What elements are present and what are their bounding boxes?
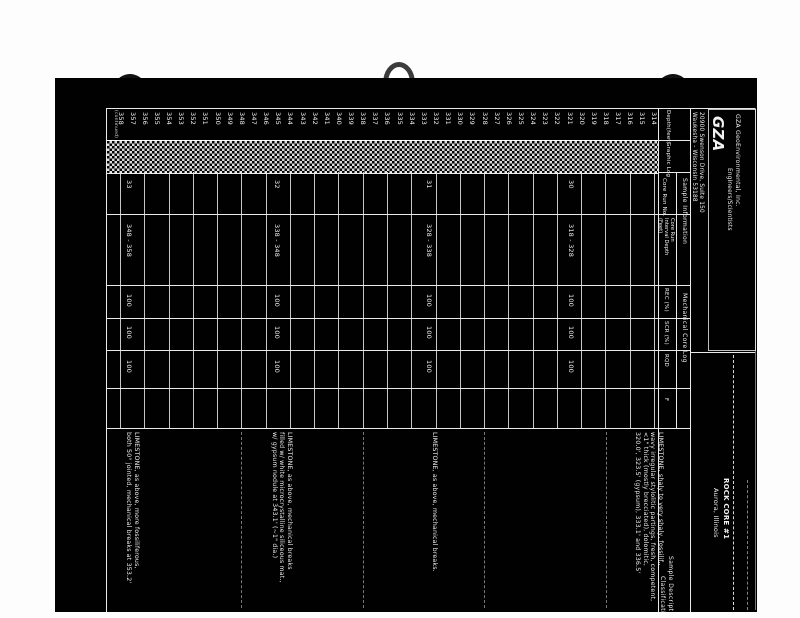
grid-line xyxy=(460,172,461,428)
depth-tick: 350 xyxy=(213,112,220,125)
classification-header: Classification xyxy=(658,576,665,612)
description-line: filled w/ white microcrystalline siliceo… xyxy=(278,432,286,608)
depth-tick: 330 xyxy=(456,112,463,125)
sample-description-header: Sample Description xyxy=(666,556,673,612)
core-run-no-value: 30 xyxy=(567,180,574,189)
depth-tick: 316 xyxy=(626,112,633,125)
core-run-no-value: 32 xyxy=(273,180,280,189)
grid-line xyxy=(363,172,364,428)
depth-tick: 338 xyxy=(359,112,366,125)
rec-value: 100 xyxy=(425,294,432,307)
grid-line xyxy=(169,172,170,428)
grid-line xyxy=(266,172,267,428)
core-run-interval-header: Core RunInterval Depth(Feet) xyxy=(657,218,675,288)
depth-tick: 326 xyxy=(505,112,512,125)
depth-tick: 323 xyxy=(541,112,548,125)
right-panel-dashed-line xyxy=(747,480,749,610)
right-panel-dashed-line xyxy=(733,355,735,610)
depth-tick: 339 xyxy=(347,112,354,125)
grid-line xyxy=(217,172,218,428)
company-address-line2: Waukesha - Wisconsin 53188 xyxy=(691,112,697,202)
depth-tick: 344 xyxy=(286,112,293,125)
description-block: LIMESTONE, as above, more fossiliferous,… xyxy=(125,432,140,608)
run-boundary-dashed-line xyxy=(241,432,243,608)
grid-line xyxy=(338,172,339,428)
grid-line xyxy=(605,172,606,428)
run-boundary-dashed-line xyxy=(606,432,608,608)
fractures-header: F xyxy=(663,398,669,401)
depth-tick: 357 xyxy=(128,112,135,125)
depth-tick: 342 xyxy=(311,112,318,125)
core-run-no-value: 33 xyxy=(125,180,132,189)
graphic-log-hatch-limestone xyxy=(107,140,658,174)
description-line: LIMESTONE, as above, more fossiliferous, xyxy=(132,432,140,608)
company-logo: GZA xyxy=(710,116,727,151)
depth-tick: 314 xyxy=(650,112,657,125)
graphic-log-column-header: Graphic Log xyxy=(665,142,671,177)
grid-line xyxy=(654,172,655,428)
log-page: 3583573563553543533523513503493483473463… xyxy=(55,78,757,612)
sample-information-header: Sample Information xyxy=(680,178,687,244)
depth-tick: 315 xyxy=(638,112,645,125)
depth-tick: 354 xyxy=(165,112,172,125)
run-boundary-dashed-line xyxy=(484,432,486,608)
depth-tick: 331 xyxy=(444,112,451,125)
depth-tick: 345 xyxy=(274,112,281,125)
depth-tick: 348 xyxy=(238,112,245,125)
grid-line xyxy=(241,172,242,428)
grid-line xyxy=(557,172,558,428)
description-line: LIMESTONE, as above, mechanical breaks. xyxy=(430,432,438,608)
rec-value: 100 xyxy=(125,294,132,307)
depth-tick: 319 xyxy=(590,112,597,125)
grid-line xyxy=(484,172,485,428)
depth-tick: 334 xyxy=(408,112,415,125)
depth-column-header: Depth(feet) xyxy=(665,110,671,144)
grid-line xyxy=(533,172,534,428)
depth-tick: 328 xyxy=(480,112,487,125)
description-line: w/ gypsum nodule at 343.1' (~1" dia.) xyxy=(270,432,278,608)
depth-tick: 336 xyxy=(383,112,390,125)
grid-line xyxy=(411,172,412,428)
depth-tick: 355 xyxy=(153,112,160,125)
grid-line xyxy=(193,172,194,428)
core-run-interval-value: 318 - 328 xyxy=(567,224,574,257)
core-run-interval-value: 348 - 358 xyxy=(125,224,132,257)
depth-tick: 329 xyxy=(468,112,475,125)
company-tagline: Engineers/Scientists xyxy=(726,168,732,231)
log-title: ROCK CORE #1 xyxy=(721,478,729,539)
rec-value: 100 xyxy=(273,294,280,307)
depth-tick: 353 xyxy=(177,112,184,125)
rqd-header: RQD xyxy=(663,354,669,367)
depth-tick: 341 xyxy=(323,112,330,125)
rqd-value: 100 xyxy=(273,360,280,373)
scanned-boring-log-sheet: { "document": { "company": { "logo_text"… xyxy=(0,0,800,618)
depth-tick: 333 xyxy=(420,112,427,125)
description-line: 320.0', 323.5' (gypsum), 333.1' and 336.… xyxy=(634,432,642,608)
depth-tick: 352 xyxy=(189,112,196,125)
grid-line xyxy=(581,172,582,428)
depth-tick: 340 xyxy=(335,112,342,125)
scr-value: 100 xyxy=(125,326,132,339)
description-line: LIMESTONE, as above, mechanical breaks xyxy=(285,432,293,608)
depth-tick: 324 xyxy=(529,112,536,125)
log-location: Aurora, Illinois xyxy=(712,488,719,538)
description-line: both 50° jointed, mechanical breaks at 3… xyxy=(125,432,133,608)
grid-line xyxy=(630,172,631,428)
core-run-no-header: Core Run No. xyxy=(661,178,667,216)
table-left-line xyxy=(106,108,107,612)
description-line: wavy irregular stylolitic partings, fres… xyxy=(649,432,657,608)
label-col-line xyxy=(676,172,677,428)
scr-header: SCR (%) xyxy=(663,321,669,345)
depth-tick: 322 xyxy=(553,112,560,125)
depth-tick: 332 xyxy=(432,112,439,125)
depth-tick: 321 xyxy=(565,112,572,125)
depth-tick: 337 xyxy=(371,112,378,125)
rec-value: 100 xyxy=(567,294,574,307)
depth-tick: 347 xyxy=(250,112,257,125)
depth-tick: 349 xyxy=(226,112,233,125)
right-panel-divider xyxy=(690,352,755,353)
depth-tick: 351 xyxy=(201,112,208,125)
interval-header-line: Interval Depth xyxy=(663,218,669,288)
depth-tick: 318 xyxy=(602,112,609,125)
core-run-no-value: 31 xyxy=(425,180,432,189)
rqd-value: 100 xyxy=(567,360,574,373)
company-name: GZA GeoEnvironmental, Inc. xyxy=(733,114,740,207)
depth-tick: 327 xyxy=(493,112,500,125)
scr-value: 100 xyxy=(425,326,432,339)
band-line xyxy=(106,428,690,429)
rqd-value: 100 xyxy=(425,360,432,373)
grid-line xyxy=(290,172,291,428)
grid-line xyxy=(314,172,315,428)
depth-tick: 325 xyxy=(517,112,524,125)
core-run-interval-value: 328 - 338 xyxy=(425,224,432,257)
depth-tick: 356 xyxy=(141,112,148,125)
continued-note: (continued) xyxy=(112,110,117,138)
depth-tick: 335 xyxy=(395,112,402,125)
rec-header: REC (%) xyxy=(663,288,669,312)
core-run-interval-value: 338 - 348 xyxy=(273,224,280,257)
rqd-value: 100 xyxy=(125,360,132,373)
grid-line xyxy=(508,172,509,428)
depth-tick: 317 xyxy=(614,112,621,125)
interval-header-line: Core Run xyxy=(669,218,675,288)
grid-line xyxy=(120,172,121,428)
depth-tick: 343 xyxy=(298,112,305,125)
depth-tick: 346 xyxy=(262,112,269,125)
depth-tick: 320 xyxy=(578,112,585,125)
company-address-line1: 20900 Swenson Drive, Suite 150 xyxy=(698,112,704,213)
scr-value: 100 xyxy=(273,326,280,339)
mechanical-core-log-header: Mechanical Core Log xyxy=(680,293,687,363)
description-line: <1" thick (mostly brecciated), dolomitic… xyxy=(641,432,649,608)
grid-line xyxy=(387,172,388,428)
description-block: LIMESTONE, as above, mechanical breaks. xyxy=(430,432,438,608)
scr-value: 100 xyxy=(567,326,574,339)
grid-line xyxy=(144,172,145,428)
description-block: LIMESTONE, as above, mechanical breaksfi… xyxy=(270,432,293,608)
run-boundary-dashed-line xyxy=(363,432,365,608)
grid-line xyxy=(436,172,437,428)
